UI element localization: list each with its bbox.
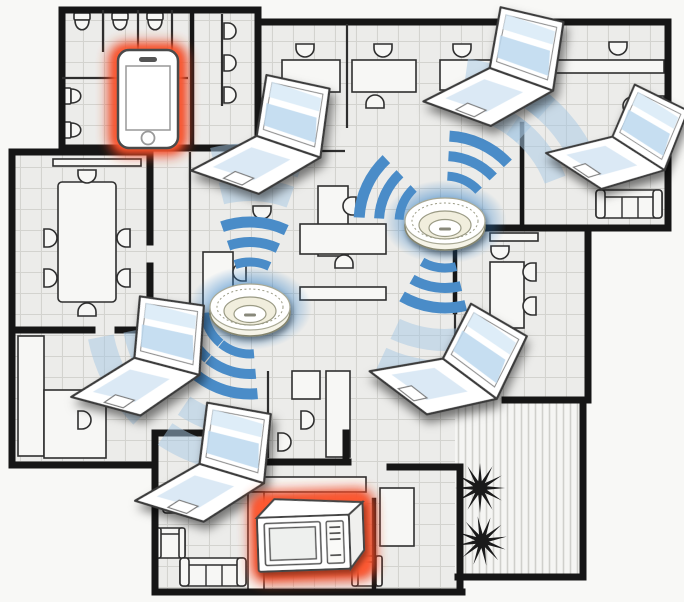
chair: [335, 255, 353, 268]
urinal: [224, 23, 236, 39]
chair: [78, 303, 96, 316]
chair: [78, 170, 96, 183]
floorplan-diagram: [0, 0, 684, 602]
chair: [374, 44, 392, 57]
desk: [352, 60, 416, 92]
cabinet: [18, 336, 44, 456]
chair: [343, 197, 356, 215]
toilet: [147, 13, 163, 30]
smartphone-interference: [108, 42, 188, 156]
chair: [523, 297, 536, 315]
chair: [366, 95, 384, 108]
chair: [117, 269, 130, 287]
chair: [609, 42, 627, 55]
microwave-window: [269, 527, 316, 561]
microwave-interference: [248, 488, 377, 584]
cabinet: [380, 488, 414, 546]
access-point-center: [210, 284, 290, 336]
toilet: [112, 13, 128, 30]
chair: [117, 229, 130, 247]
desk: [292, 371, 320, 399]
toilet: [74, 13, 90, 30]
urinal: [224, 55, 236, 71]
conference-table: [58, 182, 116, 302]
armchair: [155, 528, 185, 558]
phone-screen: [126, 66, 170, 130]
chair: [301, 411, 314, 429]
floorplan-canvas: [0, 0, 684, 602]
chair: [523, 263, 536, 281]
sofa: [596, 190, 662, 218]
sofa: [180, 558, 246, 586]
desk: [300, 287, 386, 300]
phone-home-button: [142, 132, 155, 145]
chair: [44, 269, 57, 287]
urinal: [224, 87, 236, 103]
chair: [278, 433, 291, 451]
chair: [296, 44, 314, 57]
desk: [556, 60, 664, 73]
access-point-east: [405, 198, 485, 250]
chair: [78, 411, 91, 429]
toilet: [64, 122, 81, 138]
toilet: [64, 88, 81, 104]
phone-speaker: [139, 57, 157, 62]
chair: [44, 229, 57, 247]
whiteboard: [53, 159, 141, 166]
desk: [300, 224, 386, 254]
chair: [453, 44, 471, 57]
